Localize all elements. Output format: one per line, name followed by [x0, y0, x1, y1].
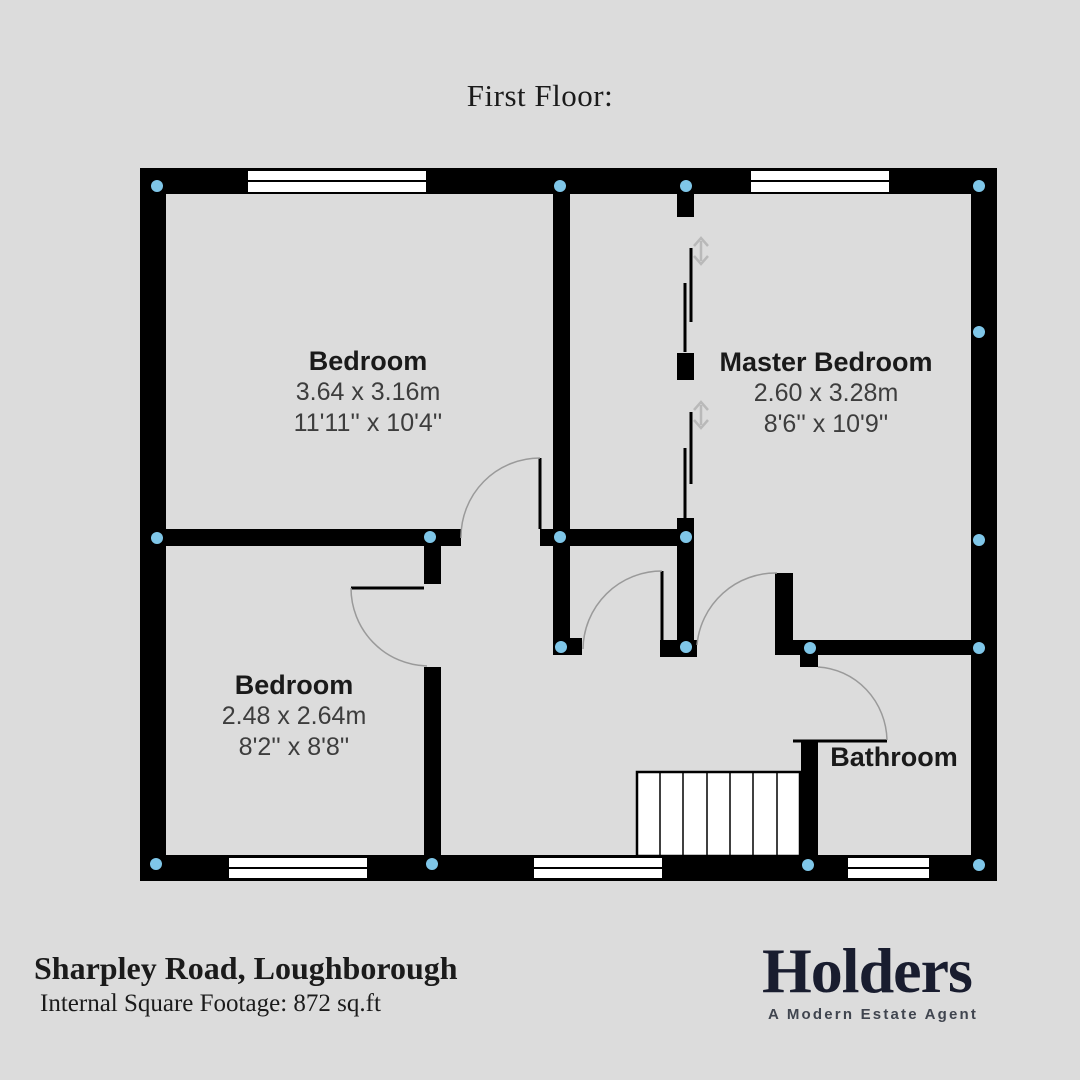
room-name: Bathroom	[794, 742, 994, 773]
room-dim-imperial: 8'6'' x 10'9''	[676, 409, 976, 440]
wall-hall-west	[166, 529, 461, 546]
marker-dot	[973, 859, 985, 871]
room-dim-metric: 2.48 x 2.64m	[144, 701, 444, 732]
marker-dot	[973, 180, 985, 192]
marker-dot	[555, 641, 567, 653]
marker-dot	[973, 642, 985, 654]
wall-left	[140, 168, 166, 881]
window-top-right	[750, 170, 890, 193]
slide-arrow-icon	[694, 238, 708, 264]
window-bottom-bathroom	[847, 857, 930, 879]
marker-dot	[804, 642, 816, 654]
door-bathroom	[793, 667, 887, 741]
marker-dot	[151, 532, 163, 544]
room-label-bedroom1: Bedroom 3.64 x 3.16m 11'11'' x 10'4''	[218, 346, 518, 439]
wall-bathroom-stub	[800, 655, 818, 667]
room-dim-imperial: 8'2'' x 8'8''	[144, 732, 444, 763]
door-vestibule	[583, 571, 662, 655]
marker-dot	[426, 858, 438, 870]
room-dim-imperial: 11'11'' x 10'4''	[218, 408, 518, 439]
staircase	[637, 772, 800, 856]
door-master-bedroom	[697, 573, 777, 645]
marker-dot	[554, 531, 566, 543]
marker-dot	[554, 180, 566, 192]
room-name: Bedroom	[144, 670, 444, 701]
room-label-bedroom2: Bedroom 2.48 x 2.64m 8'2'' x 8'8''	[144, 670, 444, 763]
agency-logo: Holders A Modern Estate Agent	[762, 938, 1052, 1023]
window-top-left	[247, 170, 427, 193]
room-name: Bedroom	[218, 346, 518, 377]
wall-vestibule-foot-west	[570, 638, 582, 655]
room-label-bathroom: Bathroom	[794, 742, 994, 773]
property-address: Sharpley Road, Loughborough	[34, 950, 458, 987]
wall-master-door-stub	[775, 573, 793, 640]
marker-dot	[802, 859, 814, 871]
marker-dot	[680, 641, 692, 653]
marker-dot	[973, 534, 985, 546]
wall-bedroom1-divider	[553, 194, 570, 655]
agency-tagline: A Modern Estate Agent	[768, 1006, 1052, 1023]
wall-right	[971, 168, 997, 881]
wall-wardrobe-stub-top	[677, 194, 694, 217]
room-dim-metric: 3.64 x 3.16m	[218, 377, 518, 408]
door-bedroom1	[461, 458, 540, 538]
internal-square-footage: Internal Square Footage: 872 sq.ft	[40, 990, 381, 1018]
marker-dot	[151, 180, 163, 192]
marker-dot	[424, 531, 436, 543]
window-bottom-middle	[533, 857, 663, 879]
room-dim-metric: 2.60 x 3.28m	[676, 378, 976, 409]
room-label-master-bedroom: Master Bedroom 2.60 x 3.28m 8'6'' x 10'9…	[676, 347, 976, 440]
door-bedroom2	[351, 588, 427, 666]
marker-dot	[680, 531, 692, 543]
agency-logo-wordmark: Holders	[762, 938, 1052, 1004]
marker-dot	[973, 326, 985, 338]
floorplan-drawing	[0, 0, 1080, 1080]
marker-dot	[150, 858, 162, 870]
marker-dot	[680, 180, 692, 192]
wall-bedroom2-right-upper	[424, 546, 441, 584]
floorplan-page: First Floor:	[0, 0, 1080, 1080]
window-bottom-left	[228, 857, 368, 879]
room-name: Master Bedroom	[676, 347, 976, 378]
